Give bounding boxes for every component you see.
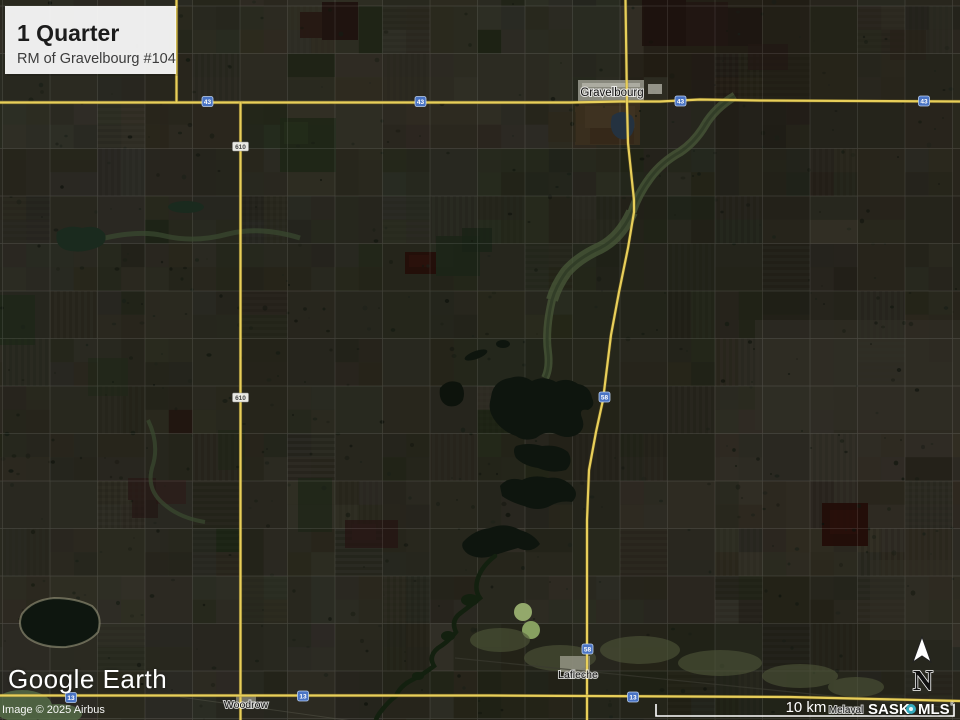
svg-text:Gravelbourg: Gravelbourg <box>580 87 643 99</box>
svg-text:SASK: SASK <box>868 701 910 718</box>
svg-text:43: 43 <box>417 99 425 106</box>
svg-text:N: N <box>913 666 933 697</box>
svg-text:Google Earth: Google Earth <box>8 664 167 694</box>
svg-text:43: 43 <box>920 98 928 105</box>
svg-text:Melaval: Melaval <box>829 705 863 716</box>
svg-text:1 Quarter: 1 Quarter <box>17 20 119 46</box>
svg-text:13: 13 <box>629 694 637 701</box>
svg-text:Woodrow: Woodrow <box>224 699 269 711</box>
svg-text:Image © 2025 Airbus: Image © 2025 Airbus <box>2 704 105 716</box>
svg-text:RM of Gravelbourg #104: RM of Gravelbourg #104 <box>17 51 176 67</box>
svg-text:13: 13 <box>67 695 75 702</box>
svg-text:43: 43 <box>204 99 212 106</box>
svg-text:610: 610 <box>235 395 246 402</box>
svg-text:®: ® <box>950 701 955 708</box>
svg-text:Lafleche: Lafleche <box>558 669 598 681</box>
svg-text:58: 58 <box>584 646 592 653</box>
svg-text:13: 13 <box>299 693 307 700</box>
svg-text:MLS: MLS <box>918 701 950 718</box>
svg-text:58: 58 <box>601 394 609 401</box>
svg-text:43: 43 <box>677 98 685 105</box>
svg-text:610: 610 <box>235 144 246 151</box>
svg-text:10 km: 10 km <box>786 699 827 716</box>
